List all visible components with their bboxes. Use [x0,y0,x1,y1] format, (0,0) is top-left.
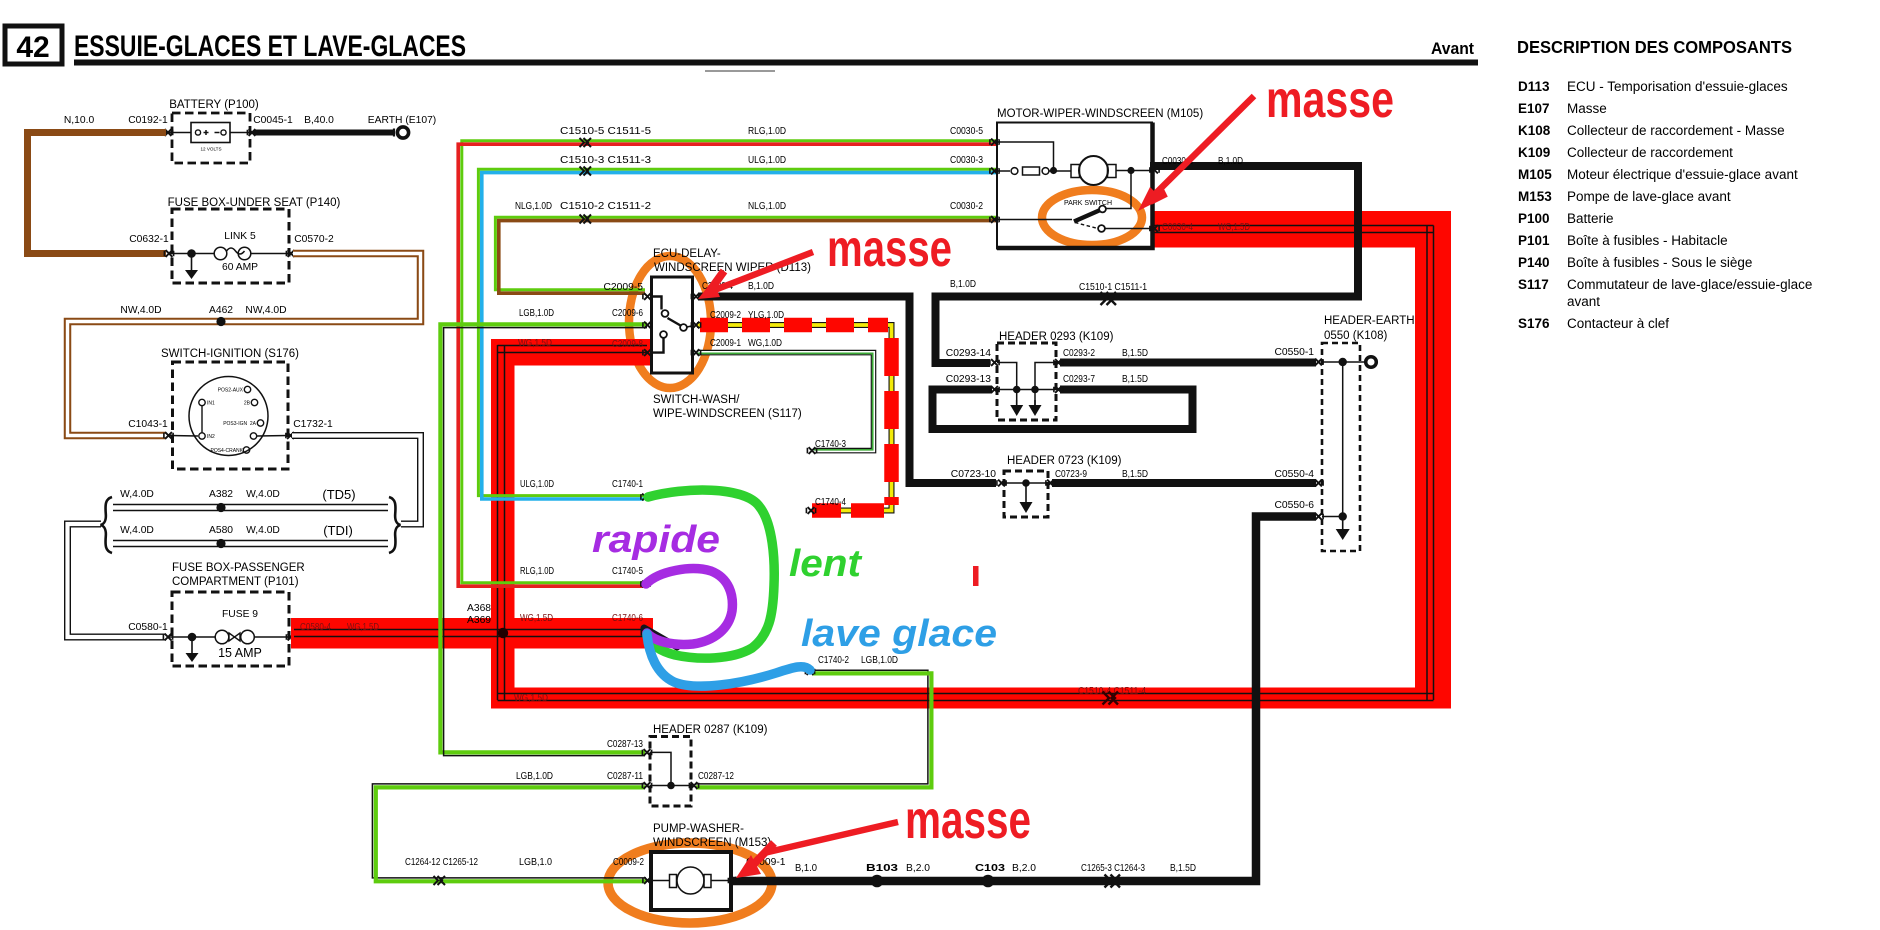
svg-text:lent: lent [789,543,862,585]
svg-text:K108: K108 [1518,123,1551,138]
svg-text:SWITCH-IGNITION (S176): SWITCH-IGNITION (S176) [161,348,299,360]
svg-text:WG,1.5D: WG,1.5D [518,338,552,349]
svg-text:C0293-13: C0293-13 [946,374,991,385]
svg-text:LGB,1.0D: LGB,1.0D [861,655,898,666]
svg-text:POS4-CRANK: POS4-CRANK [210,448,243,454]
svg-text:0550 (K108): 0550 (K108) [1324,330,1387,342]
svg-text:C0030-4: C0030-4 [1162,222,1193,233]
svg-text:C1740-3: C1740-3 [815,439,846,450]
svg-text:(TD5): (TD5) [322,487,355,502]
svg-text:A580: A580 [209,525,233,536]
svg-text:C0192-1: C0192-1 [128,115,168,126]
svg-text:WG,1.5D: WG,1.5D [1218,222,1250,233]
svg-text:C0009-2: C0009-2 [613,857,644,868]
svg-text:C1740-2: C1740-2 [818,655,849,666]
svg-text:FUSE BOX-PASSENGER: FUSE BOX-PASSENGER [172,562,305,574]
svg-text:P101: P101 [1518,233,1550,248]
svg-text:42: 42 [16,31,49,64]
svg-text:C1043-1: C1043-1 [128,419,168,430]
svg-text:WG,1.0D: WG,1.0D [748,338,782,349]
svg-text:C2009-8: C2009-8 [612,339,643,350]
svg-text:C0570-2: C0570-2 [294,234,334,245]
svg-text:C0632-1: C0632-1 [129,234,169,245]
svg-text:C1510-2 C1511-2: C1510-2 C1511-2 [560,201,651,212]
svg-text:M105: M105 [1518,167,1552,182]
svg-text:Contacteur à clef: Contacteur à clef [1567,316,1669,331]
svg-text:M153: M153 [1518,189,1552,204]
svg-text:B,1.5D: B,1.5D [1122,469,1148,480]
svg-text:Moteur électrique d'essuie-gla: Moteur électrique d'essuie-glace avant [1567,167,1798,182]
svg-text:masse: masse [827,220,952,278]
svg-text:C0723-9: C0723-9 [1055,469,1087,480]
svg-text:Commutateur de lave-glace/essu: Commutateur de lave-glace/essuie-glace [1567,277,1812,292]
svg-text:W,4.0D: W,4.0D [120,525,154,536]
svg-text:P100: P100 [1518,211,1550,226]
svg-text:POS3-IGN 2A: POS3-IGN 2A [223,421,256,427]
svg-text:ECU - Temporisation d'essuie-g: ECU - Temporisation d'essuie-glaces [1567,79,1788,94]
svg-text:C1265-3 C1264-3: C1265-3 C1264-3 [1081,863,1145,874]
svg-text:NLG,1.0D: NLG,1.0D [748,201,786,212]
svg-text:ULG,1.0D: ULG,1.0D [520,479,554,490]
svg-text:LINK 5: LINK 5 [224,231,256,242]
svg-text:C0550-6: C0550-6 [1275,500,1315,511]
svg-text:LGB,1.0D: LGB,1.0D [519,308,554,319]
svg-text:B,1.0D: B,1.0D [950,279,976,290]
svg-text:FUSE 9: FUSE 9 [222,609,258,620]
svg-text:N,10.0: N,10.0 [64,115,95,126]
svg-text:C1740-4: C1740-4 [815,497,846,508]
svg-text:A369: A369 [467,615,491,626]
svg-text:B,2.0: B,2.0 [1012,863,1036,874]
svg-text:NW,4.0D: NW,4.0D [120,305,161,316]
svg-text:RLG,1.0D: RLG,1.0D [748,126,786,137]
svg-text:Collecteur de raccordement - M: Collecteur de raccordement - Masse [1567,123,1785,138]
svg-text:LGB,1.0: LGB,1.0 [519,857,552,868]
svg-text:masse: masse [1266,71,1394,129]
svg-text:rapide: rapide [592,519,720,561]
svg-text:Batterie: Batterie [1567,211,1614,226]
svg-text:YLG,1.0D: YLG,1.0D [748,310,784,321]
svg-text:(TDI): (TDI) [323,523,353,538]
svg-text:HEADER 0293 (K109): HEADER 0293 (K109) [999,331,1114,343]
svg-text:C0287-12: C0287-12 [698,771,734,782]
svg-text:RLG,1.0D: RLG,1.0D [520,566,554,577]
svg-text:D113: D113 [1518,79,1550,94]
svg-text:C0723-10: C0723-10 [951,469,996,480]
svg-text:Pompe de lave-glace avant: Pompe de lave-glace avant [1567,189,1731,204]
svg-text:W,4.0D: W,4.0D [246,525,280,536]
svg-text:IN2: IN2 [207,434,215,440]
svg-text:C0293-14: C0293-14 [946,348,991,359]
svg-text:SWITCH-WASH/: SWITCH-WASH/ [653,394,740,406]
svg-text:C1740-1: C1740-1 [612,479,643,490]
svg-text:LGB,1.0D: LGB,1.0D [516,771,553,782]
svg-text:C2009-6: C2009-6 [612,308,643,319]
svg-text:C1740-6: C1740-6 [612,613,643,624]
svg-text:B,2.0: B,2.0 [906,863,930,874]
svg-text:B,40.0: B,40.0 [304,115,334,126]
svg-text:B,1.0D: B,1.0D [748,281,774,292]
svg-text:C2009-2: C2009-2 [710,310,741,321]
svg-text:12 VOLTS: 12 VOLTS [200,147,221,152]
svg-text:2B: 2B [244,401,251,407]
svg-text:C0030-5: C0030-5 [950,126,983,137]
svg-text:avant: avant [1567,294,1600,309]
svg-text:C1510-5 C1511-5: C1510-5 C1511-5 [560,126,651,137]
svg-text:C103: C103 [975,863,1005,874]
svg-text:B,1.0D: B,1.0D [1218,156,1243,167]
svg-text:C1732-1: C1732-1 [293,419,333,430]
svg-text:masse: masse [905,790,1031,850]
svg-text:Collecteur de raccordement: Collecteur de raccordement [1567,145,1733,160]
svg-text:S117: S117 [1518,277,1549,292]
svg-text:S176: S176 [1518,316,1550,331]
svg-text:Boîte à fusibles - Habitacle: Boîte à fusibles - Habitacle [1567,233,1728,248]
svg-text:C0030-2: C0030-2 [950,201,983,212]
svg-text:C0287-13: C0287-13 [607,739,643,750]
svg-text:IN1: IN1 [207,401,215,407]
svg-text:15 AMP: 15 AMP [218,646,262,660]
svg-text:PARK SWITCH: PARK SWITCH [1064,200,1112,207]
svg-text:C2009-1: C2009-1 [710,338,741,349]
svg-text:Masse: Masse [1567,101,1607,116]
svg-text:B103: B103 [866,863,898,874]
svg-text:WIPE-WINDSCREEN (S117): WIPE-WINDSCREEN (S117) [653,408,802,420]
svg-text:W,4.0D: W,4.0D [246,489,280,500]
svg-text:ECU-DELAY-: ECU-DELAY- [653,248,721,260]
svg-text:POS2-AUX: POS2-AUX [218,388,244,394]
svg-text:C0293-7: C0293-7 [1063,374,1095,385]
svg-text:FUSE BOX-UNDER SEAT (P140): FUSE BOX-UNDER SEAT (P140) [168,197,341,209]
svg-text:PUMP-WASHER-: PUMP-WASHER- [653,823,744,835]
svg-text:MOTOR-WIPER-WINDSCREEN (M105): MOTOR-WIPER-WINDSCREEN (M105) [997,108,1203,120]
svg-text:B,1.0: B,1.0 [795,863,817,874]
svg-text:C0550-4: C0550-4 [1275,469,1315,480]
svg-text:DESCRIPTION DES COMPOSANTS: DESCRIPTION DES COMPOSANTS [1517,37,1792,57]
svg-text:HEADER 0287 (K109): HEADER 0287 (K109) [653,724,768,736]
svg-text:HEADER-EARTH: HEADER-EARTH [1324,315,1415,327]
svg-text:C1510-1 C1511-1: C1510-1 C1511-1 [1079,282,1147,293]
svg-text:60 AMP: 60 AMP [222,262,258,273]
svg-text:A462: A462 [209,305,233,316]
svg-text:P140: P140 [1518,255,1550,270]
svg-text:C2009-5: C2009-5 [604,282,644,293]
svg-text:C1510-3 C1511-3: C1510-3 C1511-3 [560,155,651,166]
svg-text:Avant: Avant [1431,40,1474,58]
svg-text:NW,4.0D: NW,4.0D [245,305,286,316]
svg-text:WG,1.5D: WG,1.5D [514,693,548,704]
svg-text:B,1.5D: B,1.5D [1122,348,1148,359]
svg-text:A382: A382 [209,489,233,500]
svg-text:C1264-12 C1265-12: C1264-12 C1265-12 [405,857,478,868]
svg-text:A368: A368 [467,603,491,614]
svg-text:WG,1.5D: WG,1.5D [520,613,553,624]
svg-text:HEADER 0723 (K109): HEADER 0723 (K109) [1007,455,1122,467]
svg-text:Boîte à fusibles - Sous le siè: Boîte à fusibles - Sous le siège [1567,255,1752,270]
svg-text:lave glace: lave glace [801,613,997,655]
svg-text:C0045-1: C0045-1 [253,115,293,126]
svg-text:COMPARTMENT (P101): COMPARTMENT (P101) [172,576,299,588]
svg-text:E107: E107 [1518,101,1550,116]
svg-text:C0293-2: C0293-2 [1063,348,1095,359]
svg-text:WG,1.5D: WG,1.5D [347,622,379,633]
svg-text:K109: K109 [1518,145,1550,160]
svg-text:C0550-1: C0550-1 [1275,347,1315,358]
svg-text:B,1.5D: B,1.5D [1122,374,1148,385]
svg-text:ULG,1.0D: ULG,1.0D [748,155,786,166]
svg-text:ESSUIE-GLACES ET LAVE-GLACES: ESSUIE-GLACES ET LAVE-GLACES [74,30,466,63]
svg-text:B,1.5D: B,1.5D [1170,863,1196,874]
svg-text:C0287-11: C0287-11 [607,771,643,782]
svg-text:BATTERY (P100): BATTERY (P100) [169,99,259,111]
svg-text:EARTH (E107): EARTH (E107) [368,115,436,126]
svg-text:C0580-1: C0580-1 [128,622,168,633]
svg-text:W,4.0D: W,4.0D [120,489,154,500]
svg-text:C0030-3: C0030-3 [950,155,983,166]
svg-text:NLG,1.0D: NLG,1.0D [515,201,552,212]
svg-text:C0580-4: C0580-4 [300,622,331,633]
svg-text:WINDSCREEN (M153): WINDSCREEN (M153) [653,837,771,849]
svg-text:C1740-5: C1740-5 [612,566,643,577]
